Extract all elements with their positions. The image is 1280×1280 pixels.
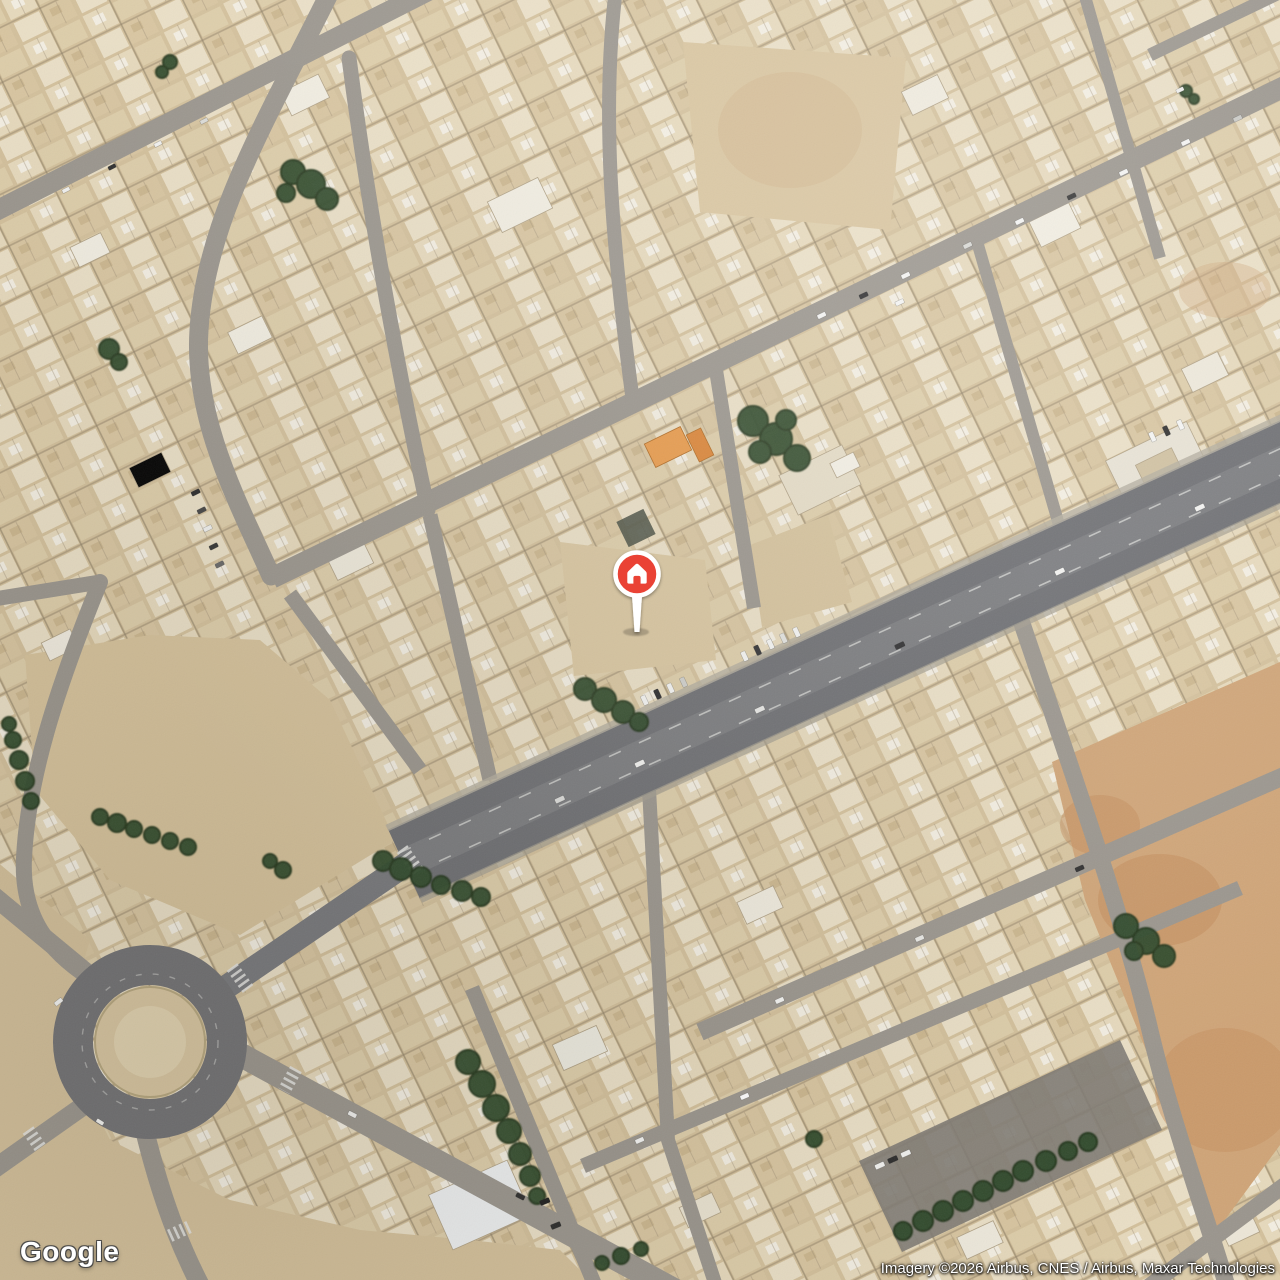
location-pin[interactable] xyxy=(600,540,676,650)
pin-stem xyxy=(632,596,642,632)
map-attribution: Imagery ©2026 Airbus, CNES / Airbus, Max… xyxy=(881,1260,1275,1277)
map-viewport[interactable]: Google Imagery ©2026 Airbus, CNES / Airb… xyxy=(0,0,1280,1280)
google-logo[interactable]: Google xyxy=(20,1236,119,1268)
